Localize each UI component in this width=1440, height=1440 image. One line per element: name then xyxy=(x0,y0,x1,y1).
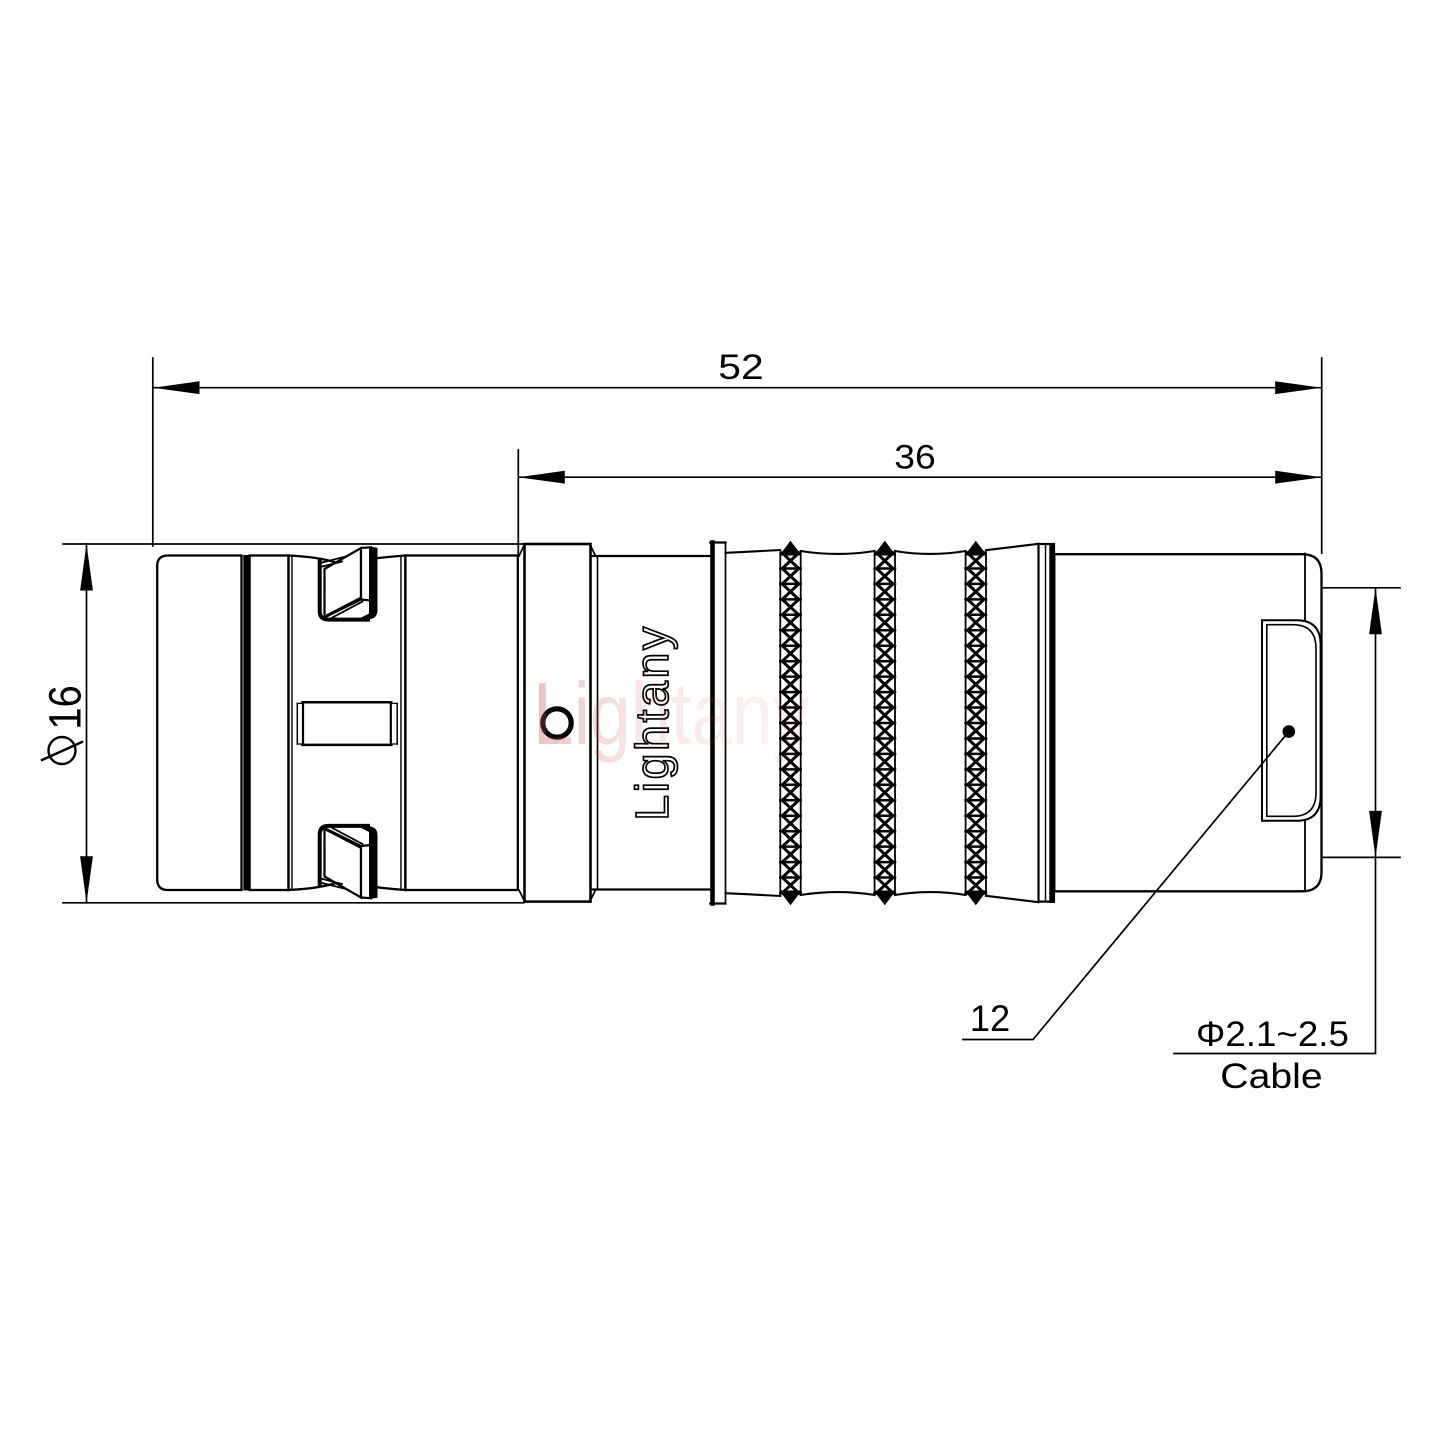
svg-text:Cable: Cable xyxy=(1220,1056,1322,1096)
svg-text:36: 36 xyxy=(894,438,935,476)
svg-text:16: 16 xyxy=(40,685,91,730)
svg-text:Lightany: Lightany xyxy=(533,666,810,764)
svg-text:12: 12 xyxy=(970,998,1010,1039)
svg-text:52: 52 xyxy=(718,347,763,387)
svg-text:Φ2.1~2.5: Φ2.1~2.5 xyxy=(1196,1015,1349,1054)
